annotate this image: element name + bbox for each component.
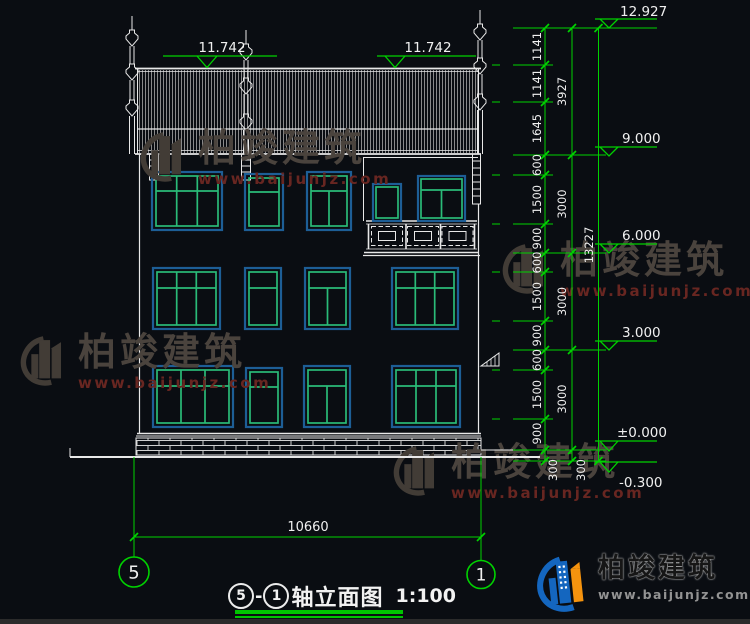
level-value-ground: ±0.000 (617, 425, 667, 441)
company-logo-url: www.baijunjz.com (598, 587, 750, 602)
level-value-roof-right: 11.742 (404, 40, 451, 56)
dim-label: 1141 (530, 32, 544, 61)
title-underline (235, 616, 403, 618)
dim-label: 3000 (555, 287, 569, 316)
title-name: 轴立面图 (291, 580, 383, 612)
level-marker-roof-right (377, 56, 476, 68)
dim-label: 900 (530, 423, 544, 445)
dim-label: 3927 (555, 77, 569, 106)
dim-total-height: 13227 (582, 227, 596, 264)
dim-label: 1141 (530, 69, 544, 98)
title-underline (235, 610, 403, 614)
dim-label: 3000 (555, 189, 569, 218)
dim-label: 3000 (555, 384, 569, 413)
dim-label: 300 (574, 459, 588, 481)
bottom-edge-bar (0, 619, 750, 624)
drawing-title: 5 - 1 轴立面图 1:100 (228, 580, 456, 612)
title-axis-start-bubble: 5 (228, 583, 254, 609)
dim-label: 600 (530, 252, 544, 274)
level-value-ridge: 12.927 (620, 4, 667, 20)
company-logo-icon (536, 553, 592, 613)
company-logo: 柏竣建筑 www.baijunjz.com (536, 553, 750, 613)
ground-line (70, 448, 540, 457)
axis-number-right: 1 (476, 566, 487, 586)
level-value-roof-left: 11.742 (198, 40, 245, 56)
dim-label: 1500 (530, 185, 544, 214)
dim-label: 300 (546, 459, 560, 481)
level-marker-roof-left (163, 56, 277, 68)
dim-total-width: 10660 (287, 520, 328, 535)
level-values: 12.927 9.000 6.000 3.000 ±0.000 -0.300 (617, 4, 667, 491)
dim-label: 1645 (530, 114, 544, 143)
dim-label: 600 (530, 349, 544, 371)
dim-label: 600 (530, 154, 544, 176)
level-value-f3: 9.000 (622, 131, 661, 147)
level-value-f1: 3.000 (622, 325, 661, 341)
title-scale: 1:100 (396, 585, 456, 607)
level-value-site: -0.300 (619, 475, 663, 491)
title-dash: - (255, 586, 262, 607)
level-marker-symbols (595, 19, 657, 472)
axis-number-left: 5 (128, 563, 139, 584)
dim-label: 900 (530, 228, 544, 250)
cad-elevation-screenshot: 柏竣建筑 www.baijunjz.com 柏竣建筑 www.baijunjz.… (0, 0, 750, 624)
dimension-annotations: 11.742 11.742 1141 1141 1645 600 1500 90… (0, 0, 750, 624)
company-logo-brand: 柏竣建筑 (598, 553, 750, 585)
level-value-f2: 6.000 (622, 228, 661, 244)
dim-label: 900 (530, 325, 544, 347)
dim-label: 1500 (530, 282, 544, 311)
title-axis-end-bubble: 1 (263, 583, 289, 609)
dim-label: 1500 (530, 380, 544, 409)
